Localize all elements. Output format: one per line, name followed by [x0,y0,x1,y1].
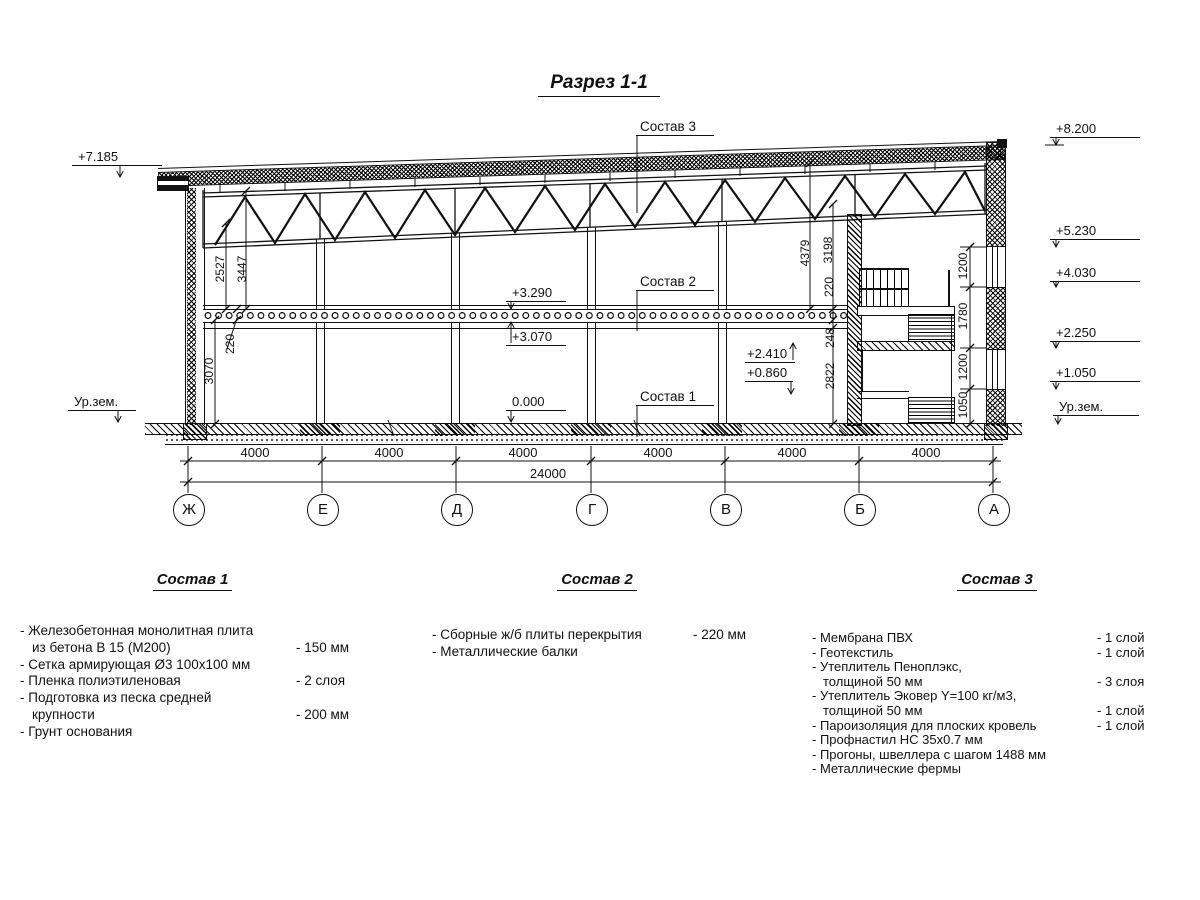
drawing-sheet: Разрез 1-1 Состав 3 Состав 2 Состав 1 +7… [0,0,1200,900]
legend-item: - Подготовка из песка средней [20,690,365,707]
ground-label-left: Ур.зем. [68,394,136,411]
legend-item: - Прогоны, швеллера с шагом 1488 мм [812,748,1182,763]
axis-bubble-V: В [710,494,742,526]
legend-item: - Грунт основания [20,724,365,741]
legend-sostav1: Состав 1 - Железобетонная монолитная пли… [20,571,365,741]
truss [203,162,987,248]
legend-item: - Профнастил НС 35х0.7 мм [812,733,1182,748]
axis-bubble-D: Д [441,494,473,526]
legend-item: - Металлические фермы [812,762,1182,777]
elev-win1-sill: +1.050 [1050,365,1140,382]
floor-break-marks [388,420,640,436]
legend-item: толщиной 50 мм- 1 слой [812,704,1182,719]
dim-span-1: 4000 [225,445,285,460]
legend-item: - Геотекстиль- 1 слой [812,646,1182,661]
legend-item: - Пленка полиэтиленовая- 2 слоя [20,673,365,690]
callout-sostav3: Состав 3 [636,119,714,136]
ground-label-right: Ур.зем. [1053,399,1139,416]
legend-item: - Утеплитель Пеноплэкс, [812,660,1182,675]
legend-item: - Железобетонная монолитная плита [20,623,365,640]
elev-floor-zero: 0.000 [506,394,566,411]
legend-item: - Пароизоляция для плоских кровель- 1 сл… [812,719,1182,734]
elev-win2-top: +5.230 [1050,223,1140,240]
legend-title: Состав 1 [20,571,365,591]
dim-span-3: 4000 [493,445,553,460]
elev-stair-upper: +2.410 [745,346,795,363]
legend-title: Состав 3 [812,571,1182,591]
dim-span-4: 4000 [628,445,688,460]
callout-sostav1: Состав 1 [636,389,714,406]
dim-span-5: 4000 [762,445,822,460]
elev-parapet: +8.200 [1050,121,1140,138]
legend-item: толщиной 50 мм- 3 слоя [812,675,1182,690]
axis-bubble-E: Е [307,494,339,526]
legend-item: - Сетка армирующая Ø3 100х100 мм [20,657,365,674]
legend-item: - Утеплитель Эковер Y=100 кг/м3, [812,689,1182,704]
dim-220-left: 220 [223,309,237,379]
legend-sostav3: Состав 3 - Мембрана ПВХ- 1 слой - Геотек… [812,571,1182,777]
legend-item: из бетона В 15 (М200)- 150 мм [20,640,365,657]
drawing-title: Разрез 1-1 [538,72,660,97]
dim-total: 24000 [518,466,578,481]
legend-item: - Металлические балки [432,644,762,661]
axis-bubble-G: Г [576,494,608,526]
dim-span-6: 4000 [896,445,956,460]
dim-2527: 2527 [213,234,227,304]
dim-2822: 2822 [823,341,837,411]
axis-bubble-Zh: Ж [173,494,205,526]
legend-item: - Сборные ж/б плиты перекрытия- 220 мм [432,627,762,644]
dim-3447: 3447 [235,234,249,304]
legend-item: - Мембрана ПВХ- 1 слой [812,631,1182,646]
dim-span-2: 4000 [359,445,419,460]
elev-slab-bottom: +3.070 [506,329,566,346]
elev-win2-sill: +4.030 [1050,265,1140,282]
callout-sostav2: Состав 2 [636,274,714,291]
elev-left-roof: +7.185 [72,149,162,166]
dim-4379: 4379 [798,218,812,288]
dim-3070: 3070 [202,336,216,406]
legend-sostav2: Состав 2 - Сборные ж/б плиты перекрытия-… [432,571,762,661]
elev-win1-top: +2.250 [1050,325,1140,342]
dim-wall-1050: 1050 [956,370,970,440]
legend-item: крупности- 200 мм [20,707,365,724]
legend-title: Состав 2 [432,571,762,591]
elev-slab-top: +3.290 [506,285,566,302]
axis-bubble-B: Б [844,494,876,526]
elev-stair-lower: +0.860 [745,365,793,382]
axis-bubble-A: А [978,494,1010,526]
